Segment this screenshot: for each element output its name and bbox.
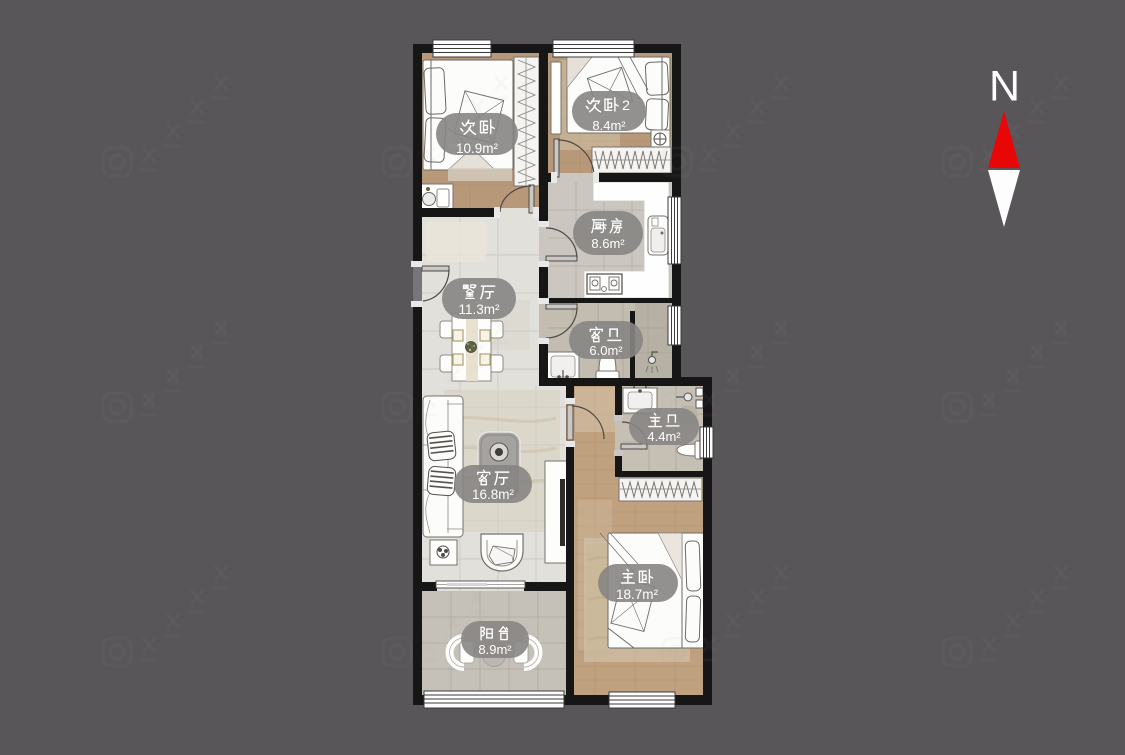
svg-text:N: N bbox=[989, 63, 1020, 111]
